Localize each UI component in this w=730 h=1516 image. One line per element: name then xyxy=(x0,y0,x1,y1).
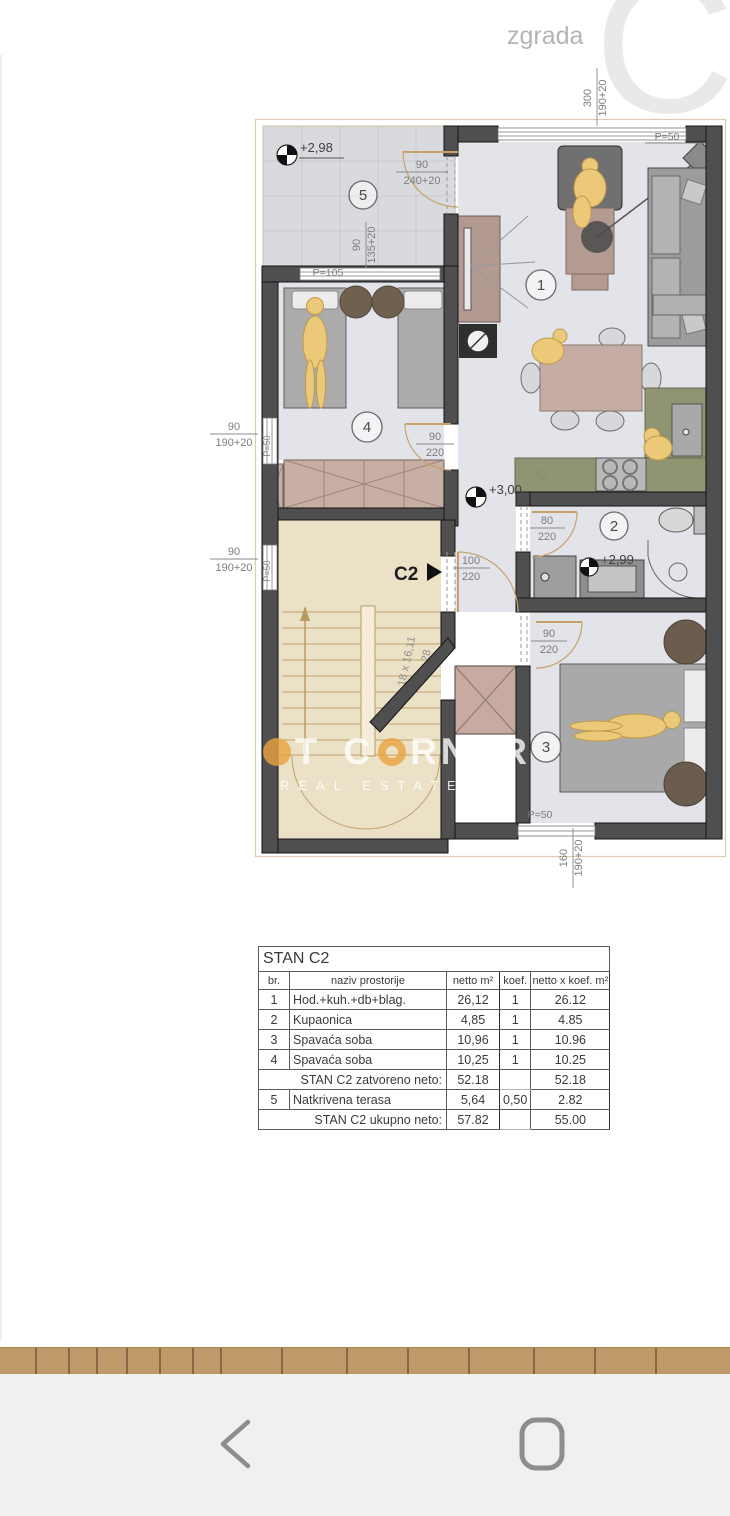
watermark-o-dot-icon xyxy=(263,738,291,766)
col-netto: netto m² xyxy=(447,972,500,990)
watermark-letters: RNER xyxy=(410,731,531,773)
watermark-letter: H xyxy=(228,731,259,773)
watermark-letter: C xyxy=(343,731,374,773)
dim-terrace-bottom-w: 90 xyxy=(351,239,363,251)
elevation-bathroom: +2,99 xyxy=(601,552,634,567)
area-table: STAN C2 br. naziv prostorije netto m² ko… xyxy=(258,946,610,1130)
shaft xyxy=(455,666,516,734)
col-total: netto x koef. m² xyxy=(531,972,610,990)
cell-koef: 0,50 xyxy=(500,1090,531,1110)
sofa xyxy=(648,168,710,346)
home-square-icon xyxy=(522,1420,562,1468)
cell-netto: 10,25 xyxy=(447,1050,500,1070)
cell-br: 1 xyxy=(259,990,290,1010)
dim-terrace-right-w: 90 xyxy=(416,159,428,171)
cell-koef: 1 xyxy=(500,1010,531,1030)
cell-name: Spavaća soba xyxy=(290,1050,447,1070)
room-number-3: 3 xyxy=(542,739,550,756)
watermark-subtitle: REAL ESTATE xyxy=(228,778,531,793)
cell-name: Hod.+kuh.+db+blag. xyxy=(290,990,447,1010)
dim-left-upper-w: 90 xyxy=(228,421,240,433)
back-button[interactable] xyxy=(210,1414,270,1474)
grand-label: STAN C2 ukupno neto: xyxy=(259,1110,447,1130)
parapet-bottom: P=50 xyxy=(528,809,553,821)
table-row: 5 Natkrivena terasa 5,64 0,50 2.82 xyxy=(259,1090,610,1110)
dim-left-lower-w: 90 xyxy=(228,546,240,558)
table-row: 2 Kupaonica 4,85 1 4.85 xyxy=(259,1010,610,1030)
cell-total: 2.82 xyxy=(531,1090,610,1110)
room-number-2: 2 xyxy=(610,518,618,535)
cell-br: 2 xyxy=(259,1010,290,1030)
cell-total: 4.85 xyxy=(531,1010,610,1030)
table-row: 1 Hod.+kuh.+db+blag. 26,12 1 26.12 xyxy=(259,990,610,1010)
grand-total: 55.00 xyxy=(531,1110,610,1130)
col-br: br. xyxy=(259,972,290,990)
subtotal-koef-empty xyxy=(500,1070,531,1090)
cell-netto: 5,64 xyxy=(447,1090,500,1110)
subtotal-label: STAN C2 zatvoreno neto: xyxy=(259,1070,447,1090)
cell-koef: 1 xyxy=(500,1030,531,1050)
col-koef: koef. xyxy=(500,972,531,990)
table-header-row: br. naziv prostorije netto m² koef. nett… xyxy=(259,972,610,990)
dim-room3-w: 90 xyxy=(543,628,555,640)
table-title: STAN C2 xyxy=(259,947,610,972)
parapet-left-upper: P=50 xyxy=(262,435,272,456)
cell-br: 4 xyxy=(259,1050,290,1070)
dim-top-h: 190+20 xyxy=(597,79,609,116)
table-title-row: STAN C2 xyxy=(259,947,610,972)
elevation-terrace: +2,98 xyxy=(300,140,333,155)
cell-name: Kupaonica xyxy=(290,1010,447,1030)
cell-br: 5 xyxy=(259,1090,290,1110)
cell-koef: 1 xyxy=(500,1050,531,1070)
system-navigation-bar xyxy=(0,1374,730,1516)
watermark-letter: T xyxy=(295,731,322,773)
parapet-top: P=50 xyxy=(655,131,680,143)
dim-bottom-h: 190+20 xyxy=(573,839,585,876)
home-button[interactable] xyxy=(512,1414,572,1474)
screenshot-root: { "building": { "wing_label": "zgrada", … xyxy=(0,0,730,1516)
table-subtotal-row: STAN C2 zatvoreno neto: 52.18 52.18 xyxy=(259,1070,610,1090)
table-grand-row: STAN C2 ukupno neto: 57.82 55.00 xyxy=(259,1110,610,1130)
parapet-terrace: P=105 xyxy=(313,267,344,279)
grand-koef-empty xyxy=(500,1110,531,1130)
cell-netto: 26,12 xyxy=(447,990,500,1010)
dim-bath-h: 220 xyxy=(538,531,556,543)
next-image-preview-strip[interactable] xyxy=(0,1347,730,1375)
dim-entry-h: 220 xyxy=(462,571,480,583)
wardrobe xyxy=(284,460,444,508)
toilet xyxy=(659,508,693,532)
cell-total: 10.96 xyxy=(531,1030,610,1050)
back-chevron-icon xyxy=(223,1422,248,1466)
parapet-left-lower: P=50 xyxy=(262,560,272,581)
room-number-5: 5 xyxy=(359,187,367,204)
entrance-label-text: C2 xyxy=(394,564,418,585)
dim-entry-w: 100 xyxy=(462,555,480,567)
cell-total: 10.25 xyxy=(531,1050,610,1070)
watermark-o-ring-icon xyxy=(378,738,406,766)
dim-bottom-w: 160 xyxy=(558,849,570,867)
subtotal-total: 52.18 xyxy=(531,1070,610,1090)
watermark: HTCRNER REAL ESTATE xyxy=(228,731,531,793)
table-row: 3 Spavaća soba 10,96 1 10.96 xyxy=(259,1030,610,1050)
room-number-4: 4 xyxy=(363,419,371,436)
dim-door4-h: 220 xyxy=(426,447,444,459)
cell-name: Natkrivena terasa xyxy=(290,1090,447,1110)
cell-koef: 1 xyxy=(500,990,531,1010)
dim-top-w: 300 xyxy=(582,89,594,107)
table-row: 4 Spavaća soba 10,25 1 10.25 xyxy=(259,1050,610,1070)
cell-netto: 4,85 xyxy=(447,1010,500,1030)
cell-netto: 10,96 xyxy=(447,1030,500,1050)
dim-terrace-bottom-h: 135+20 xyxy=(366,226,378,263)
boiler xyxy=(459,324,497,358)
dim-door4-w: 90 xyxy=(429,431,441,443)
cell-name: Spavaća soba xyxy=(290,1030,447,1050)
dim-left-upper-h: 190+20 xyxy=(215,437,252,449)
cell-total: 26.12 xyxy=(531,990,610,1010)
room-number-1: 1 xyxy=(537,277,545,294)
dim-room3-h: 220 xyxy=(540,644,558,656)
cell-br: 3 xyxy=(259,1030,290,1050)
subtotal-netto: 52.18 xyxy=(447,1070,500,1090)
col-naziv: naziv prostorije xyxy=(290,972,447,990)
grand-netto: 57.82 xyxy=(447,1110,500,1130)
dim-left-lower-h: 190+20 xyxy=(215,562,252,574)
elevation-hall: +3,00 xyxy=(489,482,522,497)
watermark-brand: HTCRNER xyxy=(228,731,531,773)
dim-terrace-right-h: 240+20 xyxy=(403,175,440,187)
dim-bath-w: 80 xyxy=(541,515,553,527)
